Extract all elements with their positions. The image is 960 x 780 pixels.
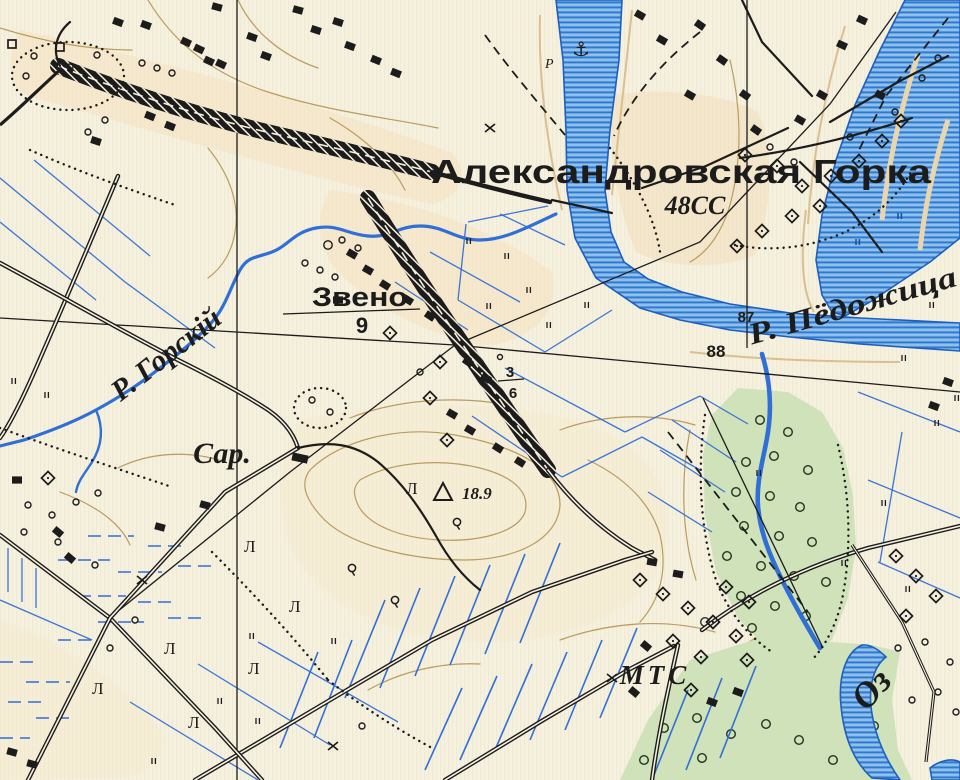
tree-species-mark: Л [164, 639, 176, 658]
fraction-numerator: 3 [506, 364, 514, 381]
spot-height-88: 88 [707, 342, 726, 361]
mts-label: МТС [619, 660, 691, 690]
river-gorskiy-label: Р. Горскій [104, 301, 228, 408]
tree-species-mark: Л [406, 479, 418, 498]
road-cross-icon [328, 742, 338, 750]
road-cross-icon [485, 124, 495, 132]
anchor-icon: ⚓ [572, 37, 590, 61]
tree-species-mark: Л [248, 659, 260, 678]
tree-species-mark: Л [188, 713, 200, 732]
topographic-map[interactable]: ⚓ Р Александровская Горка 48СС Звено 9 С… [0, 0, 960, 780]
tree-species-mark: Л [92, 679, 104, 698]
sar-label: Сар. [193, 437, 251, 470]
lake-corner [930, 760, 960, 780]
zveno-label: Звено [312, 282, 408, 312]
fraction-denominator: 6 [509, 385, 517, 402]
tree-species-mark: Л [244, 537, 256, 556]
elevation-label: 18.9 [462, 484, 492, 503]
settlement-code-label: 48СС [664, 191, 726, 220]
tree-species-mark: Л [289, 597, 301, 616]
pier-mark-label: Р [544, 57, 554, 72]
spot-height-87: 87 [738, 309, 755, 326]
settlement-name-label: Александровская Горка [431, 153, 932, 190]
map-canvas: ⚓ Р Александровская Горка 48СС Звено 9 С… [0, 0, 960, 780]
zveno-count-label: 9 [356, 313, 368, 338]
